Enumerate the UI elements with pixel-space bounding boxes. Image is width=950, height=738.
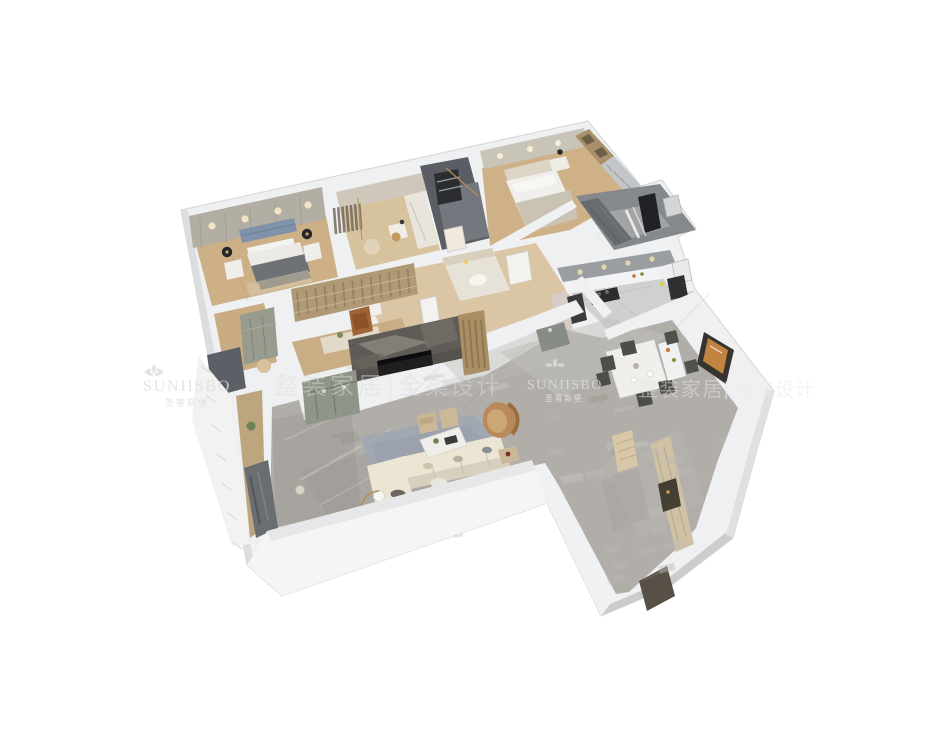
svg-text:全案设计: 全案设计: [735, 379, 815, 401]
svg-text:|: |: [388, 376, 393, 398]
svg-text:整装家居: 整装家居: [638, 378, 724, 401]
svg-text:|: |: [724, 379, 729, 399]
svg-text:SUNIISBO: SUNIISBO: [143, 378, 231, 395]
svg-text:整装家居: 整装家居: [274, 373, 386, 400]
svg-text:圣蒂斯堡: 圣蒂斯堡: [165, 397, 209, 408]
svg-text:圣蒂斯堡: 圣蒂斯堡: [545, 393, 583, 403]
svg-text:全案设计: 全案设计: [398, 373, 502, 400]
svg-text:SUNIISBO: SUNIISBO: [527, 378, 603, 393]
